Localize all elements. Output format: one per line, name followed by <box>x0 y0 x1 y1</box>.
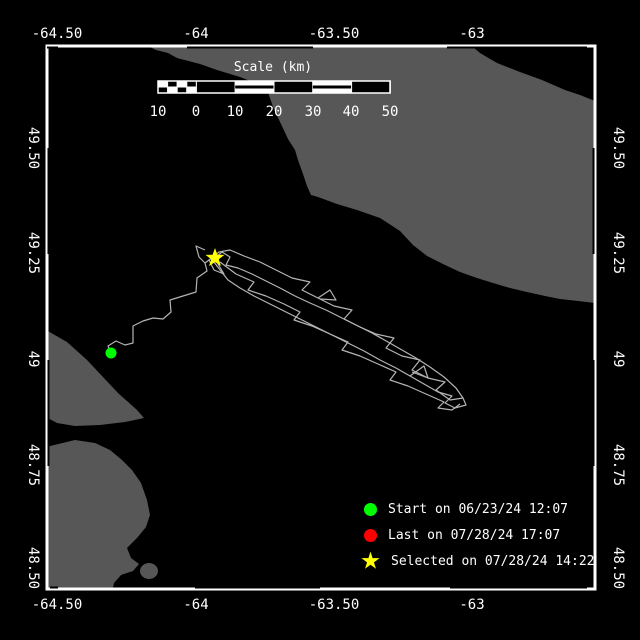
lon-label-bottom: -64.50 <box>32 598 83 612</box>
scale-cell <box>177 87 187 93</box>
lat-label-left: 49 <box>26 351 40 368</box>
lat-label-left: 48.75 <box>26 444 40 486</box>
lon-label-top: -63 <box>459 27 484 41</box>
legend-item-circle: Last on 07/28/24 17:07 <box>364 526 560 544</box>
lat-label-left: 49.25 <box>26 232 40 274</box>
scale-bar-number: 40 <box>343 104 360 120</box>
legend-item-label: Start on 06/23/24 12:07 <box>388 502 568 517</box>
lon-label-top: -64 <box>183 27 208 41</box>
dot-icon <box>364 503 377 516</box>
legend-item-label: Last on 07/28/24 17:07 <box>388 528 560 543</box>
scale-cell <box>168 87 178 93</box>
lon-label-bottom: -63 <box>459 598 484 612</box>
scale-bar-number: 10 <box>150 104 167 120</box>
lat-label-right: 48.50 <box>611 547 625 589</box>
scale-bar-number: 20 <box>266 104 283 120</box>
scale-segment <box>352 81 391 93</box>
legend-item-star: Selected on 07/28/24 14:22 <box>364 552 595 570</box>
dot-icon <box>364 529 377 542</box>
scale-segment-stripe <box>235 86 274 89</box>
lon-label-bottom: -64 <box>183 598 208 612</box>
scale-bar-number: 50 <box>382 104 399 120</box>
lon-label-top: -63.50 <box>309 27 360 41</box>
start-marker <box>106 348 117 359</box>
lon-label-bottom: -63.50 <box>309 598 360 612</box>
scale-bar-number: 30 <box>305 104 322 120</box>
star-icon <box>361 552 380 571</box>
lat-label-left: 48.50 <box>26 547 40 589</box>
scale-bar-number: 10 <box>227 104 244 120</box>
satellite-track-map: -64.50-64.50-64-64-63.50-63.50-63-6349.5… <box>0 0 640 640</box>
scale-segment-stripe <box>313 86 352 89</box>
scale-cell <box>187 87 197 93</box>
lat-label-right: 49.25 <box>611 232 625 274</box>
map-canvas <box>0 0 640 640</box>
scale-bar <box>158 81 390 93</box>
scale-cell <box>158 81 168 87</box>
lat-label-left: 49.50 <box>26 127 40 169</box>
scale-bar-title: Scale (km) <box>234 60 312 75</box>
lat-label-right: 49.50 <box>611 127 625 169</box>
legend-item-circle: Start on 06/23/24 12:07 <box>364 500 568 518</box>
scale-segment <box>196 81 235 93</box>
scale-cell <box>177 81 187 87</box>
scale-cell <box>158 87 168 93</box>
scale-bar-number: 0 <box>192 104 200 120</box>
scale-cell <box>168 81 178 87</box>
scale-cell <box>187 81 197 87</box>
legend-item-label: Selected on 07/28/24 14:22 <box>391 554 595 569</box>
scale-segment <box>274 81 313 93</box>
lon-label-top: -64.50 <box>32 27 83 41</box>
lat-label-right: 49 <box>611 351 625 368</box>
land-small-island <box>140 563 158 579</box>
lat-label-right: 48.75 <box>611 444 625 486</box>
